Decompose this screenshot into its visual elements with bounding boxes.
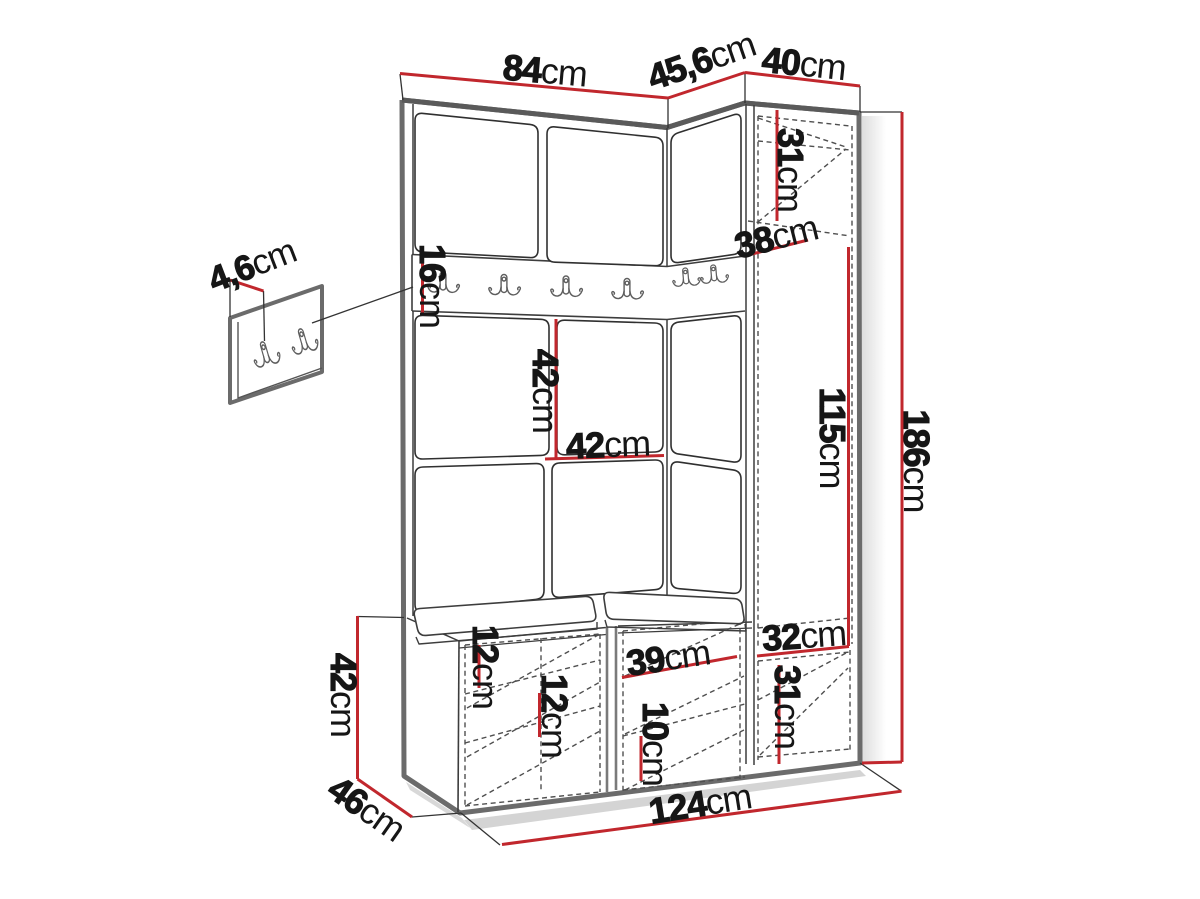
svg-text:32cm: 32cm <box>761 612 848 659</box>
svg-text:31cm: 31cm <box>768 665 809 749</box>
svg-text:12cm: 12cm <box>535 674 576 758</box>
svg-text:42cm: 42cm <box>565 422 650 466</box>
svg-text:186cm: 186cm <box>897 409 938 512</box>
svg-text:10cm: 10cm <box>636 702 677 786</box>
svg-text:12cm: 12cm <box>466 625 507 709</box>
svg-text:42cm: 42cm <box>526 349 567 433</box>
svg-text:42cm: 42cm <box>324 653 365 737</box>
svg-text:40cm: 40cm <box>760 38 848 88</box>
svg-text:31cm: 31cm <box>771 128 812 212</box>
svg-text:16cm: 16cm <box>413 244 454 328</box>
svg-text:84cm: 84cm <box>501 46 588 94</box>
svg-text:115cm: 115cm <box>813 387 854 488</box>
